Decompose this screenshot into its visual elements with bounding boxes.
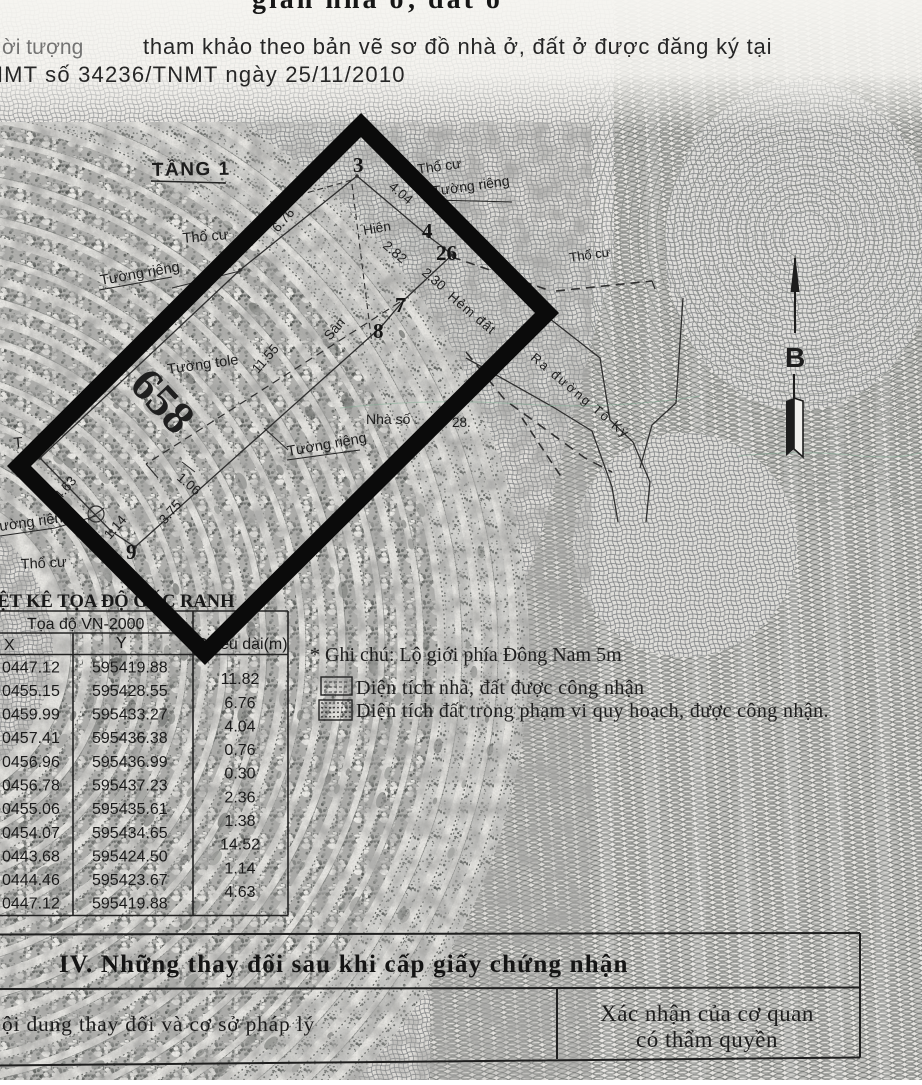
- svg-text:595433.27: 595433.27: [92, 707, 168, 724]
- svg-text:14.52: 14.52: [220, 837, 260, 854]
- svg-text:0459.99: 0459.99: [2, 707, 60, 724]
- svg-text:B: B: [785, 342, 805, 373]
- svg-text:Y: Y: [116, 635, 127, 652]
- svg-text:4.63: 4.63: [224, 884, 255, 901]
- svg-text:0.76: 0.76: [224, 742, 255, 759]
- svg-text:595436.38: 595436.38: [92, 730, 168, 747]
- svg-text:IV. Những thay đổi sau khi cấp: IV. Những thay đổi sau khi cấp giấy chứn…: [59, 951, 629, 978]
- svg-text:0456.78: 0456.78: [2, 778, 60, 795]
- svg-text:2.36: 2.36: [224, 789, 255, 806]
- svg-text:IỆT KÊ TỌA ĐỘ GỐC RANH: IỆT KÊ TỌA ĐỘ GỐC RANH: [0, 590, 235, 612]
- svg-text:0443.68: 0443.68: [2, 848, 60, 865]
- svg-text:9: 9: [126, 540, 137, 564]
- svg-text:X: X: [4, 637, 15, 654]
- svg-text:0455.06: 0455.06: [2, 801, 60, 818]
- svg-text:595423.67: 595423.67: [92, 872, 168, 889]
- svg-text:8: 8: [373, 319, 384, 343]
- svg-text:Tọa độ VN-2000: Tọa độ VN-2000: [27, 616, 145, 633]
- svg-text:0447.12: 0447.12: [2, 659, 60, 676]
- svg-text:ời tượng: ời tượng: [2, 36, 83, 59]
- svg-text:1.14: 1.14: [224, 860, 255, 877]
- svg-text:26: 26: [436, 241, 457, 265]
- svg-text:0.30: 0.30: [224, 766, 255, 783]
- svg-text:0444.46: 0444.46: [2, 872, 60, 889]
- svg-text:595437.23: 595437.23: [92, 778, 168, 795]
- svg-text:Nhà số :: Nhà số :: [366, 411, 418, 427]
- svg-text:NMT số 34236/TNMT ngày 25/11/2: NMT số 34236/TNMT ngày 25/11/2010: [0, 62, 406, 87]
- svg-text:595436.99: 595436.99: [92, 754, 168, 771]
- svg-text:ội dung thay đổi và cơ sở pháp: ội dung thay đổi và cơ sở pháp lý: [2, 1012, 315, 1036]
- svg-text:* Ghi chú: Lộ giới phía Đông N: * Ghi chú: Lộ giới phía Đông Nam 5m: [310, 644, 622, 666]
- svg-text:595434.65: 595434.65: [92, 825, 168, 842]
- svg-text:7: 7: [395, 293, 406, 317]
- svg-text:Diện tích nhà, đất được công n: Diện tích nhà, đất được công nhận: [356, 677, 644, 699]
- svg-text:595424.50: 595424.50: [92, 848, 168, 865]
- svg-text:595419.88: 595419.88: [92, 896, 168, 913]
- svg-text:11.82: 11.82: [221, 671, 260, 688]
- svg-text:Thổ cư: Thổ cư: [20, 555, 67, 573]
- svg-text:0455.15: 0455.15: [2, 683, 60, 700]
- svg-text:28.: 28.: [452, 415, 471, 430]
- svg-text:tham khảo theo bản vẽ sơ đồ nh: tham khảo theo bản vẽ sơ đồ nhà ở, đất ở…: [143, 34, 772, 59]
- svg-text:1.38: 1.38: [224, 813, 255, 830]
- svg-text:0447.12: 0447.12: [2, 896, 60, 913]
- svg-text:0454.07: 0454.07: [2, 825, 60, 842]
- svg-text:0457.41: 0457.41: [2, 730, 60, 747]
- svg-text:0456.96: 0456.96: [2, 754, 60, 771]
- svg-text:gian nhà ở, đất ở: gian nhà ở, đất ở: [252, 0, 504, 15]
- svg-text:có thẩm quyền: có thẩm quyền: [636, 1027, 778, 1052]
- svg-text:Diện tích đất trong phạm vi qu: Diện tích đất trong phạm vi quy hoạch, đ…: [356, 700, 829, 722]
- svg-text:595419.88: 595419.88: [92, 659, 168, 676]
- svg-text:4.04: 4.04: [224, 718, 255, 735]
- svg-text:6.76: 6.76: [224, 695, 255, 712]
- svg-text:TẦNG 1: TẦNG 1: [152, 158, 231, 181]
- svg-text:595428.55: 595428.55: [92, 683, 168, 700]
- svg-text:3: 3: [353, 153, 364, 177]
- svg-text:Xác nhận của cơ quan: Xác nhận của cơ quan: [600, 1001, 814, 1026]
- svg-text:T: T: [13, 434, 24, 452]
- svg-text:4: 4: [422, 219, 433, 243]
- svg-text:595435.61: 595435.61: [92, 801, 168, 818]
